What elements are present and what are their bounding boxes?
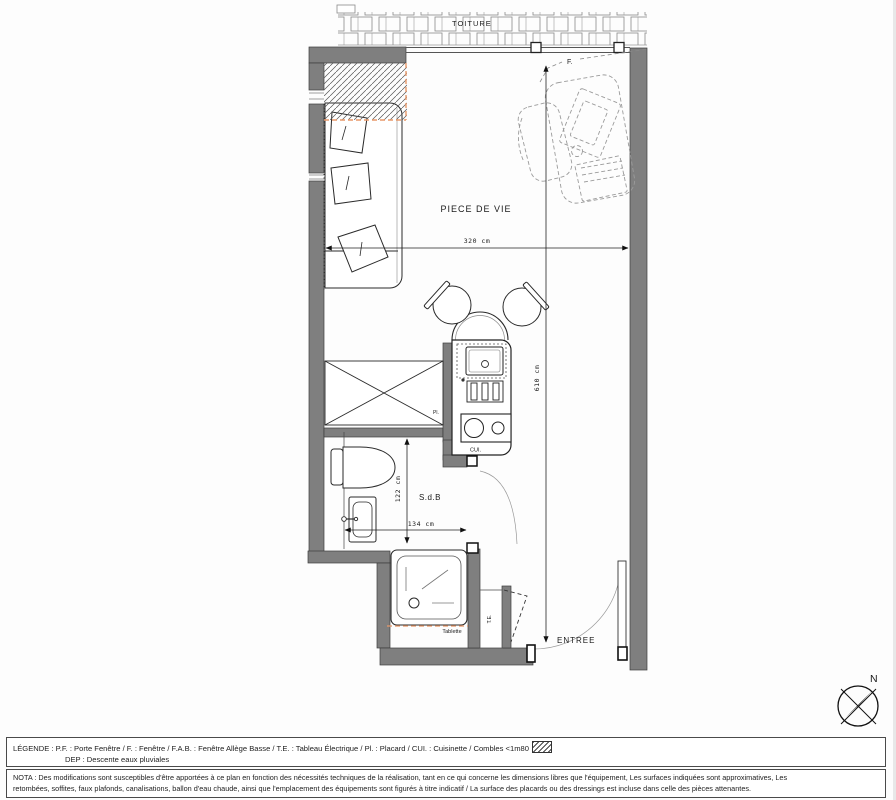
legend-line1: LÉGENDE : P.F. : Porte Fenêtre / F. : Fe… xyxy=(13,741,879,754)
room-label-bathroom: S.d.B xyxy=(419,493,441,502)
bed xyxy=(325,103,402,288)
dimension-label-610: 610 cm xyxy=(533,365,541,391)
wall-top-left xyxy=(309,47,406,63)
north-arrow xyxy=(846,691,872,717)
toilet xyxy=(331,447,395,488)
faucet-knob xyxy=(461,378,464,381)
wall-shower-left xyxy=(377,563,390,648)
window-post xyxy=(614,43,624,53)
door-jamb xyxy=(467,456,477,466)
kitchen-sink xyxy=(466,347,503,375)
bathroom-door-arc xyxy=(480,471,517,544)
wall-kitchen-corner-stub xyxy=(443,455,467,467)
washbasin xyxy=(342,497,376,542)
dashed-desk-furniture xyxy=(515,73,637,206)
room-label-living: PIECE DE VIE xyxy=(440,204,511,214)
door-jamb xyxy=(527,645,535,662)
wall-left-long xyxy=(309,181,324,552)
kitchenette-label: CUI. xyxy=(470,448,481,454)
north-label: N xyxy=(870,673,878,685)
floor-plan-drawing: TOITURE F. xyxy=(0,0,896,736)
room-label-entrance: ENTREE xyxy=(557,636,595,645)
dimension-label-122: 122 cm xyxy=(394,476,402,502)
legend-text: LÉGENDE : P.F. : Porte Fenêtre / F. : Fe… xyxy=(13,744,529,753)
wall-shower-right xyxy=(468,549,480,648)
wall-right xyxy=(630,48,647,670)
roof-label: TOITURE xyxy=(452,19,492,28)
wall-bottom-left-stub xyxy=(308,551,390,563)
wall-left-mid xyxy=(309,104,324,173)
kitchenette: CUI. xyxy=(452,340,511,455)
dimension-label-320: 320 cm xyxy=(464,237,490,245)
electrical-panel-label: T.E. xyxy=(487,615,493,624)
closet: Pl. xyxy=(325,361,443,425)
door-jamb xyxy=(618,647,627,660)
north-compass: N xyxy=(838,673,878,726)
legend-line2: DEP : Descente eaux pluviales xyxy=(65,754,879,765)
combles-hatch-swatch xyxy=(532,741,552,753)
nota-box: NOTA : Des modifications sont susceptibl… xyxy=(6,769,886,798)
wall-left-upper xyxy=(309,63,324,90)
roof-band: TOITURE xyxy=(337,5,647,45)
wall-kitchen-left xyxy=(443,343,452,442)
wall-bottom xyxy=(380,648,533,665)
nota-line2: retombées, soffites, faux plafonds, cana… xyxy=(13,784,879,795)
nota-line1: NOTA : Des modifications sont susceptibl… xyxy=(13,773,879,784)
dimension-label-134: 134 cm xyxy=(408,520,434,528)
shelf-label: Tablette xyxy=(442,629,461,635)
roof-edge-notch xyxy=(337,5,355,13)
window-post xyxy=(531,43,541,53)
wall-bathroom-top xyxy=(324,428,443,437)
pillow xyxy=(331,163,371,204)
window-label: F. xyxy=(567,59,573,66)
entrance-door-leaf xyxy=(618,561,626,649)
legend-box: LÉGENDE : P.F. : Porte Fenêtre / F. : Fe… xyxy=(6,737,886,767)
wall-te-right xyxy=(502,586,511,648)
door-jamb xyxy=(467,543,478,553)
shower-drain xyxy=(409,598,419,608)
low-ceiling-zone xyxy=(324,63,407,120)
dining-table-and-chairs xyxy=(424,281,549,340)
floor-plan-page: TOITURE F. xyxy=(0,0,896,800)
entrance-door xyxy=(527,561,627,662)
shower: Tablette xyxy=(387,550,468,635)
closet-label: Pl. xyxy=(433,410,439,416)
